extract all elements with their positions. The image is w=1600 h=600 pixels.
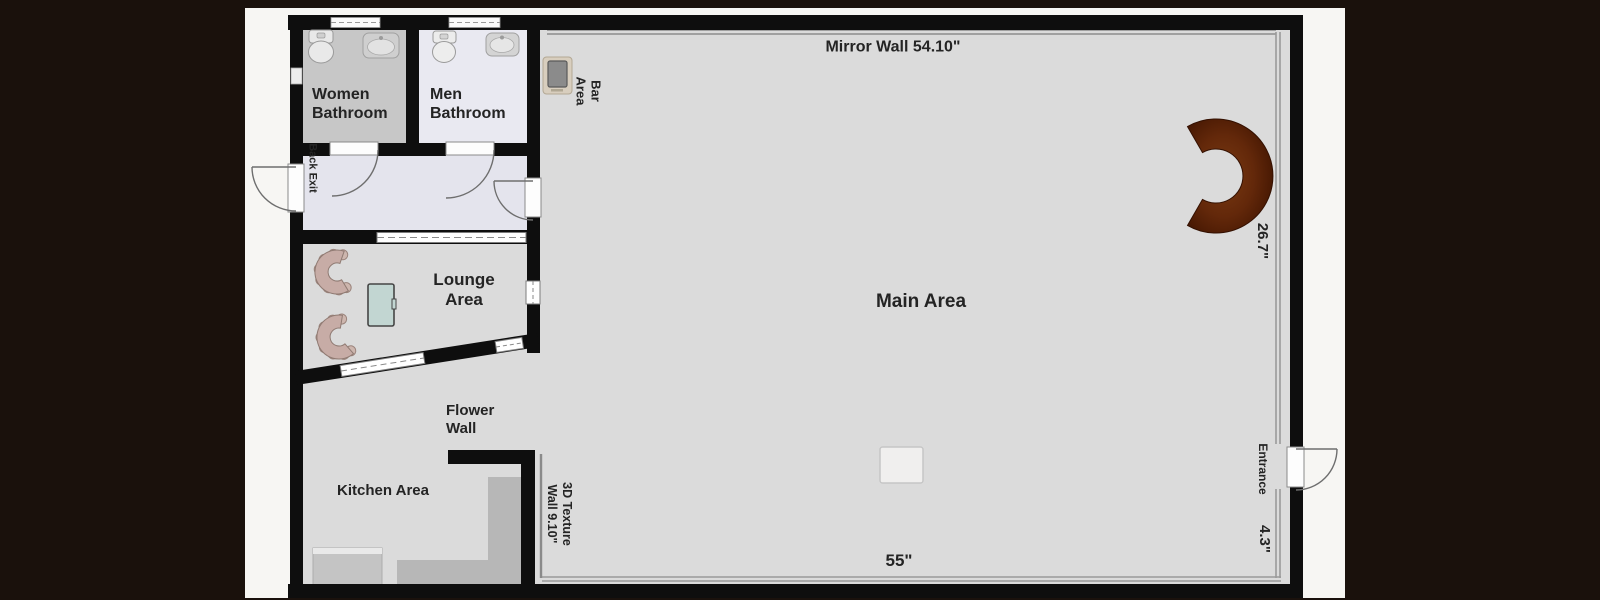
wall-top — [288, 15, 1303, 30]
window-lounge-right — [526, 281, 540, 304]
kitchen-counter-bottom — [397, 560, 521, 584]
women-sink — [363, 33, 399, 58]
wall-bottom — [288, 584, 1303, 598]
floor-plan-drawing — [0, 0, 1600, 600]
right-wall-dimension: 26.7" — [1253, 223, 1271, 259]
floor-plan-stage: Women Bathroom Men Bathroom Back Exit Ba… — [0, 0, 1600, 600]
door-back-exit — [252, 164, 304, 212]
main-area-label: Main Area — [876, 291, 966, 313]
women-toilet — [309, 30, 334, 63]
men-sink — [486, 33, 519, 56]
men-toilet — [433, 31, 457, 63]
door-entrance — [1287, 447, 1337, 490]
bar-area-label: Bar Area — [573, 77, 604, 106]
women-bathroom-label: Women Bathroom — [312, 86, 388, 124]
kitchen-appliance-top-edge — [313, 548, 382, 554]
bottom-wall-dimension: 55" — [886, 551, 913, 571]
wall-left-upper — [290, 15, 303, 165]
wall-between-bathrooms — [406, 29, 419, 143]
wall-hall-right-mid — [527, 217, 540, 281]
wall-right-upper — [1290, 15, 1303, 447]
window-top-women — [331, 18, 380, 28]
dance-floor-marker — [880, 447, 923, 483]
window-hallway-bottom — [377, 233, 526, 243]
lounge-area-label: Lounge Area — [433, 270, 494, 310]
wall-flower-vertical — [521, 450, 535, 590]
wall-left-lower — [290, 212, 303, 584]
men-bathroom-label: Men Bathroom — [430, 86, 506, 124]
window-left-small — [291, 68, 302, 84]
texture-wall-label: 3D Texture Wall 9.10" — [544, 482, 574, 546]
flower-wall-label: Flower Wall — [446, 402, 494, 437]
entrance-offset-dimension: 4.3" — [1255, 525, 1273, 553]
entrance-label: Entrance — [1256, 443, 1270, 494]
window-top-men — [449, 18, 500, 28]
kitchen-counter-vertical — [488, 477, 521, 563]
tablet-icon — [543, 57, 572, 94]
coffee-table-icon — [368, 284, 396, 326]
wall-right-lower — [1290, 487, 1303, 598]
kitchen-area-label: Kitchen Area — [337, 482, 429, 500]
back-exit-label: Back Exit — [306, 143, 319, 193]
wall-hall-right-upper — [527, 28, 540, 178]
wall-bathroom-bottom-2 — [378, 143, 446, 156]
mirror-wall-label: Mirror Wall 54.10" — [825, 39, 960, 58]
